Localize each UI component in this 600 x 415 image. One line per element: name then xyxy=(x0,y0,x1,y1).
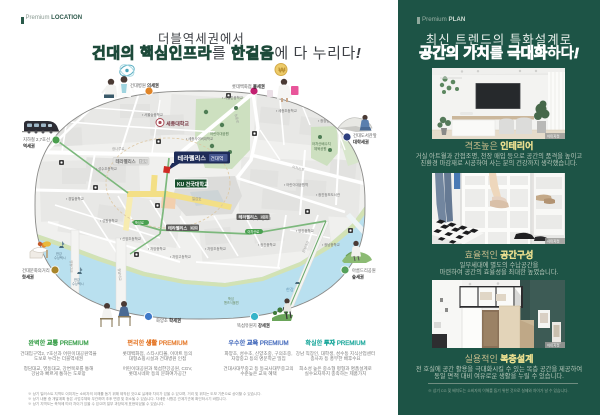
svg-text:대학세권: 대학세권 xyxy=(353,139,369,146)
svg-text:▪ 자양초등학교: ▪ 자양초등학교 xyxy=(205,246,226,251)
svg-text:▪ 성수초등학교: ▪ 성수초등학교 xyxy=(96,166,117,171)
svg-text:이미지컷: 이미지컷 xyxy=(547,239,559,244)
svg-text:아차산로: 아차산로 xyxy=(248,229,260,234)
svg-text:▪ 서울촌중학교: ▪ 서울촌중학교 xyxy=(222,95,243,100)
svg-text:롯데백화점 몰세권: 롯데백화점 몰세권 xyxy=(232,83,265,90)
svg-text:▪ 서울숲중학교: ▪ 서울숲중학교 xyxy=(142,112,163,117)
svg-text:▪ 광진정보도서관: ▪ 광진정보도서관 xyxy=(316,192,340,197)
svg-text:한강: 한강 xyxy=(286,286,294,292)
svg-text:▪ 자양중학교: ▪ 자양중학교 xyxy=(148,246,166,251)
svg-text:▪ 광장중학교: ▪ 광장중학교 xyxy=(318,118,336,123)
svg-text:체육공원: 체육공원 xyxy=(314,146,326,151)
svg-text:테라펠리스: 테라펠리스 xyxy=(178,155,207,163)
svg-text:아차산배수지: 아차산배수지 xyxy=(312,141,331,146)
svg-text:▪ 세종사이버대학교: ▪ 세종사이버대학교 xyxy=(186,136,213,141)
svg-text:▪ 자양고등학교: ▪ 자양고등학교 xyxy=(170,254,191,259)
svg-text:테라펠리스: 테라펠리스 xyxy=(168,225,187,232)
svg-text:▪ 신양초등학교: ▪ 신양초등학교 xyxy=(120,236,141,241)
svg-text:3단지: 3단지 xyxy=(191,225,198,230)
svg-text:세종대학교: 세종대학교 xyxy=(166,121,189,128)
svg-text:▪ 경일중학교: ▪ 경일중학교 xyxy=(66,196,84,201)
svg-text:▪ 양진중학교: ▪ 양진중학교 xyxy=(296,228,314,233)
svg-text:▪ 광남중학교: ▪ 광남중학교 xyxy=(322,242,340,247)
svg-text:건대역: 건대역 xyxy=(211,155,224,162)
svg-text:일감호: 일감호 xyxy=(192,196,201,201)
svg-text:테라펠리스: 테라펠리스 xyxy=(116,158,136,165)
svg-text:이미지컷: 이미지컷 xyxy=(547,343,559,348)
svg-text:건대문화의거리: 건대문화의거리 xyxy=(22,267,50,274)
svg-text:핫세권: 핫세권 xyxy=(22,274,34,281)
svg-text:역세권: 역세권 xyxy=(23,143,35,150)
svg-text:▪ 광진중학교: ▪ 광진중학교 xyxy=(258,242,276,247)
svg-text:수상택시: 수상택시 xyxy=(54,255,66,260)
svg-text:숲세권: 숲세권 xyxy=(352,274,364,281)
svg-text:건대병원 의세권: 건대병원 의세권 xyxy=(130,82,159,89)
svg-text:핸즈식물원: 핸즈식물원 xyxy=(224,300,239,305)
svg-text:▪ 성원중학교: ▪ 성원중학교 xyxy=(100,218,118,223)
svg-text:지하철 2,7호선: 지하철 2,7호선 xyxy=(23,136,50,143)
svg-text:수상택시: 수상택시 xyxy=(72,281,84,286)
svg-text:KU 건국대학교: KU 건국대학교 xyxy=(177,181,209,188)
svg-text:영동대교: 영동대교 xyxy=(69,260,74,273)
svg-text:▪ 세종초등학교: ▪ 세종초등학교 xyxy=(276,108,297,113)
svg-text:건대도서관앞: 건대도서관앞 xyxy=(353,132,377,139)
svg-text:광나루로: 광나루로 xyxy=(112,146,124,151)
svg-text:▪ 어린이대공원역: ▪ 어린이대공원역 xyxy=(284,182,308,187)
svg-text:어린이대공원: 어린이대공원 xyxy=(210,131,229,136)
svg-text:아름드리공원: 아름드리공원 xyxy=(352,267,376,274)
svg-text:2단지: 2단지 xyxy=(261,214,268,219)
svg-text:이미지컷: 이미지컷 xyxy=(547,134,559,139)
svg-text:테라펠리스: 테라펠리스 xyxy=(239,214,258,221)
svg-text:뚝섬로: 뚝섬로 xyxy=(135,220,144,225)
svg-text:1단지: 1단지 xyxy=(140,159,148,164)
svg-text:₩: ₩ xyxy=(278,66,286,75)
svg-text:뚝섬유원지 강세권: 뚝섬유원지 강세권 xyxy=(237,322,270,329)
svg-text:화양초 학세권: 화양초 학세권 xyxy=(156,317,181,324)
